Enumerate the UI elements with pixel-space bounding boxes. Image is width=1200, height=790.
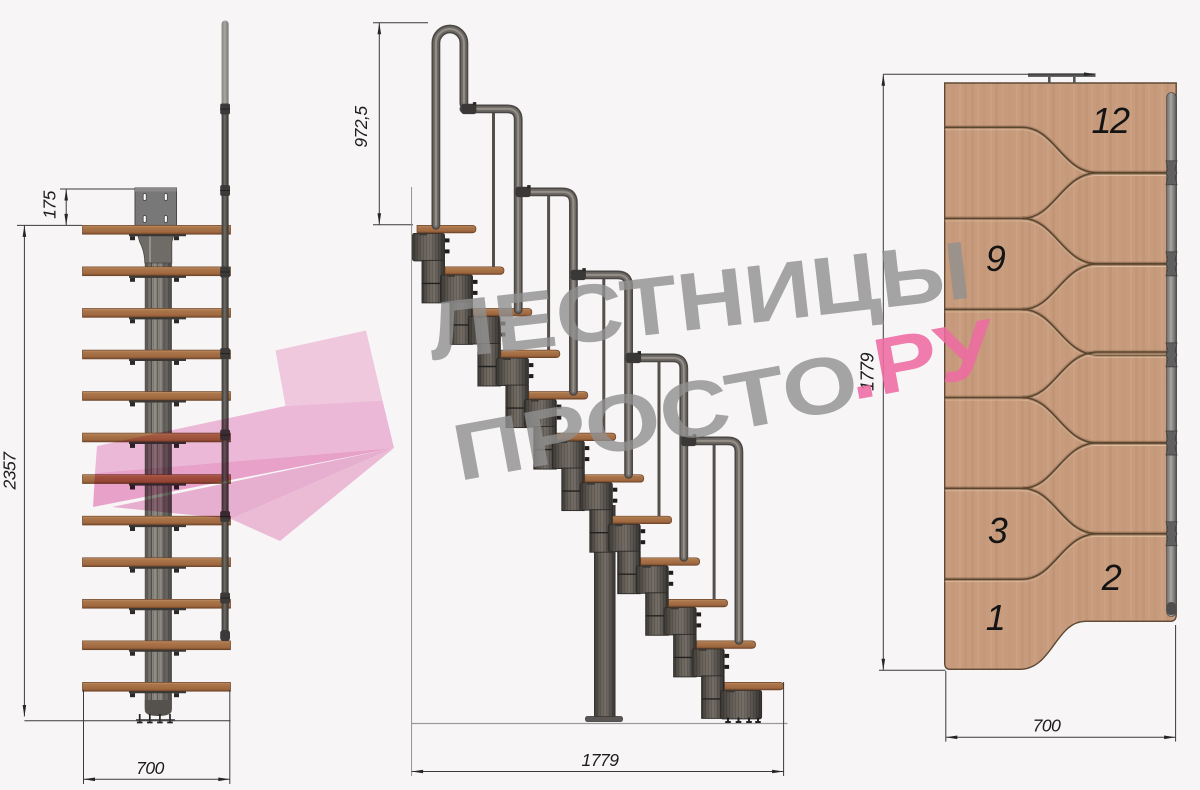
svg-text:3: 3 [988, 510, 1008, 551]
svg-text:700: 700 [1033, 716, 1061, 736]
svg-text:9: 9 [986, 238, 1006, 279]
svg-text:12: 12 [1091, 100, 1130, 141]
svg-text:2: 2 [1101, 557, 1122, 598]
svg-text:1: 1 [986, 597, 1005, 638]
svg-text:2357: 2357 [0, 451, 20, 491]
svg-text:972,5: 972,5 [351, 106, 371, 148]
svg-text:175: 175 [40, 190, 60, 218]
svg-text:1779: 1779 [582, 750, 620, 770]
svg-text:700: 700 [136, 758, 164, 778]
